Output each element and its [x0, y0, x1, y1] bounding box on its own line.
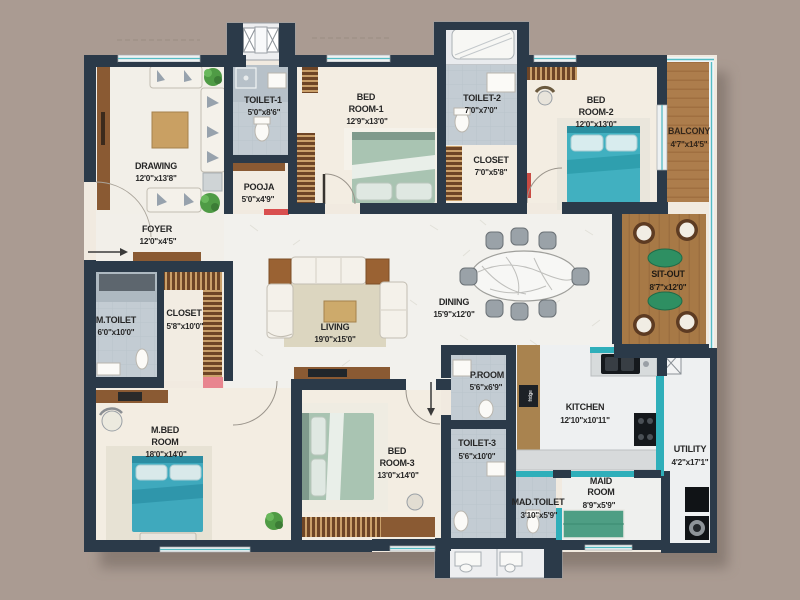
- svg-text:KITCHEN: KITCHEN: [566, 402, 605, 412]
- svg-text:ROOM-3: ROOM-3: [380, 458, 415, 468]
- svg-text:ROOM: ROOM: [587, 487, 614, 497]
- svg-text:7'0"x7'0": 7'0"x7'0": [465, 106, 498, 115]
- svg-text:DRAWING: DRAWING: [135, 161, 177, 171]
- svg-text:BED: BED: [357, 92, 376, 102]
- svg-text:M.BED: M.BED: [151, 425, 180, 435]
- svg-text:5'0"x8'6": 5'0"x8'6": [248, 108, 281, 117]
- svg-text:DINING: DINING: [439, 297, 469, 307]
- svg-text:15'9"x12'0": 15'9"x12'0": [433, 310, 475, 319]
- svg-text:12'0"x4'5": 12'0"x4'5": [140, 237, 177, 246]
- svg-text:BALCONY: BALCONY: [668, 126, 710, 136]
- svg-text:ROOM-1: ROOM-1: [349, 104, 384, 114]
- svg-text:MAID: MAID: [590, 476, 613, 486]
- svg-text:4'7"x14'5": 4'7"x14'5": [671, 140, 708, 149]
- svg-text:18'0"x14'0": 18'0"x14'0": [145, 450, 187, 459]
- svg-text:FOYER: FOYER: [142, 224, 173, 234]
- svg-text:3'10"x5'9": 3'10"x5'9": [521, 511, 558, 520]
- svg-text:8'9"x5'9": 8'9"x5'9": [583, 501, 616, 510]
- svg-text:fridge: fridge: [528, 390, 534, 402]
- svg-text:ROOM-2: ROOM-2: [579, 107, 614, 117]
- svg-text:5'8"x10'0": 5'8"x10'0": [167, 322, 204, 331]
- svg-text:BED: BED: [388, 446, 407, 456]
- svg-text:SIT-OUT: SIT-OUT: [651, 269, 685, 279]
- svg-text:POOJA: POOJA: [244, 182, 275, 192]
- svg-text:P.ROOM: P.ROOM: [470, 370, 504, 380]
- svg-text:M.TOILET: M.TOILET: [96, 315, 137, 325]
- svg-text:TOILET-1: TOILET-1: [244, 95, 282, 105]
- svg-text:CLOSET: CLOSET: [473, 155, 509, 165]
- svg-text:12'0"x13'8": 12'0"x13'8": [135, 174, 177, 183]
- svg-text:13'0"x14'0": 13'0"x14'0": [377, 471, 419, 480]
- svg-text:CLOSET: CLOSET: [166, 308, 202, 318]
- svg-text:TOILET-3: TOILET-3: [458, 438, 496, 448]
- svg-text:TOILET-2: TOILET-2: [463, 93, 501, 103]
- svg-text:19'0"x15'0": 19'0"x15'0": [314, 335, 356, 344]
- svg-text:12'9"x13'0": 12'9"x13'0": [346, 117, 388, 126]
- svg-text:4'2"x17'1": 4'2"x17'1": [672, 458, 709, 467]
- svg-text:5'0"x4'9": 5'0"x4'9": [242, 195, 275, 204]
- svg-text:5'6"x6'9": 5'6"x6'9": [470, 383, 503, 392]
- svg-text:8'7"x12'0": 8'7"x12'0": [650, 283, 687, 292]
- svg-text:MAD.TOILET: MAD.TOILET: [512, 497, 566, 507]
- svg-text:6'0"x10'0": 6'0"x10'0": [98, 328, 135, 337]
- svg-text:12'10"x10'11": 12'10"x10'11": [560, 416, 610, 425]
- svg-text:UTILITY: UTILITY: [674, 444, 707, 454]
- svg-text:7'0"x5'8": 7'0"x5'8": [475, 168, 508, 177]
- svg-text:5'6"x10'0": 5'6"x10'0": [459, 452, 496, 461]
- svg-text:ROOM: ROOM: [151, 437, 178, 447]
- svg-text:LIVING: LIVING: [321, 322, 350, 332]
- svg-text:12'0"x13'0": 12'0"x13'0": [575, 120, 617, 129]
- svg-text:BED: BED: [587, 95, 606, 105]
